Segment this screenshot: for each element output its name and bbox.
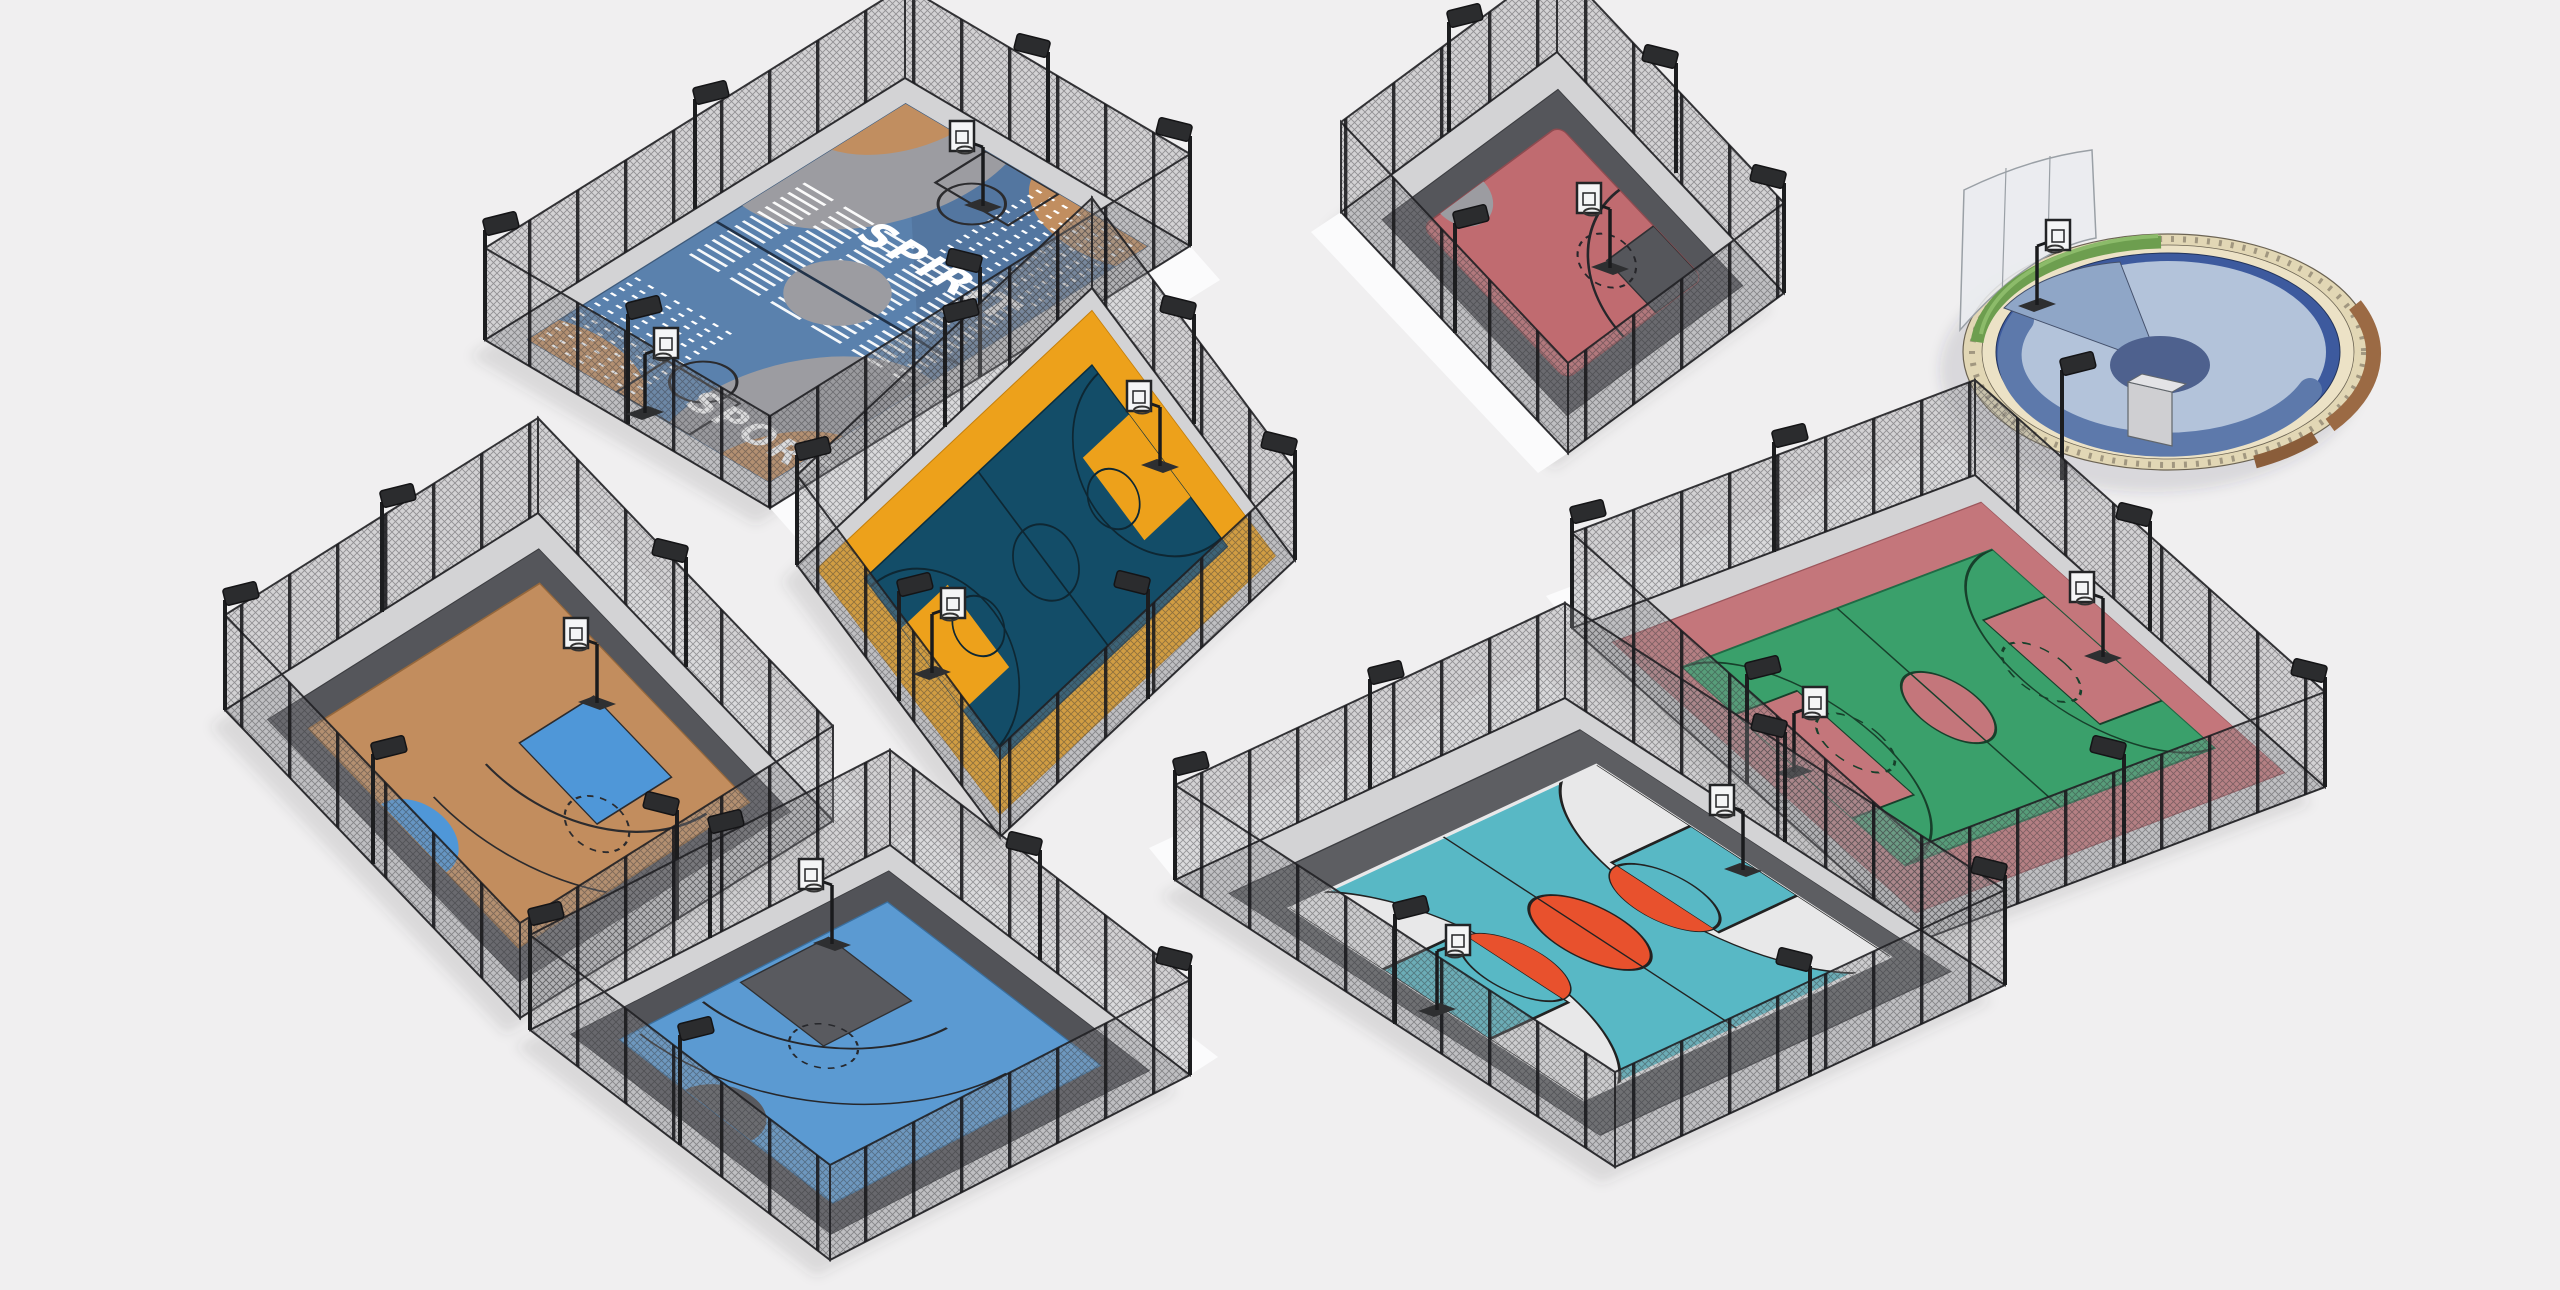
courts-scene: SPIRIT SPORT: [0, 0, 2560, 1290]
round-cabin: [2128, 382, 2172, 446]
court-red-half: [1341, 0, 1787, 453]
render-canvas: SPIRIT SPORT: [0, 0, 2560, 1290]
